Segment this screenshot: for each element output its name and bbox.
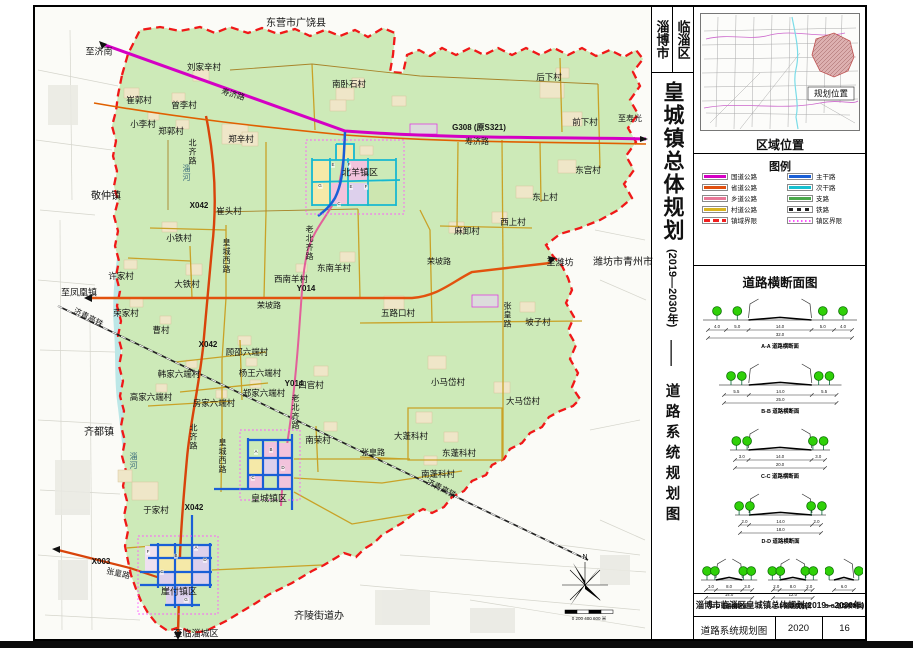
svg-text:3.0: 3.0	[739, 454, 746, 459]
cross-section-diagram: 2.014.02.018.0D-D 道路横断面	[726, 485, 835, 547]
legend-label: 乡道公路	[731, 193, 757, 203]
titleblock-mid-line	[693, 616, 867, 617]
legend-label: 支路	[816, 193, 829, 203]
svg-text:2.0: 2.0	[813, 519, 820, 524]
legend-column-right: 主干路次干路支路铁路镇区界限	[787, 172, 864, 224]
svg-text:5.0: 5.0	[734, 324, 741, 329]
svg-text:8.0: 8.0	[726, 584, 733, 589]
legend-swatch-solid	[787, 173, 813, 180]
cross-section-diagram: 5.514.05.525.0B-B 道路横断面	[710, 355, 851, 417]
legend-item: 支路	[787, 194, 864, 202]
svg-text:3.0: 3.0	[708, 584, 715, 589]
legend-label: 铁路	[816, 204, 829, 214]
legend-label: 村道公路	[731, 204, 757, 214]
legend-swatch-solid	[702, 173, 728, 180]
legend-swatch-solid	[787, 184, 813, 191]
svg-text:D-D 道路横断面: D-D 道路横断面	[761, 537, 800, 545]
titleblock-drawing-name: 道路系统规划图	[693, 623, 775, 637]
title-dash: ——	[665, 340, 680, 366]
legend-label: 镇域界限	[731, 215, 757, 225]
panel-divider-1	[693, 153, 867, 154]
svg-text:2.0: 2.0	[741, 519, 748, 524]
legend-label: 省道公路	[731, 182, 757, 192]
svg-text:20.0: 20.0	[776, 462, 785, 467]
city-name: 淄博市	[653, 20, 672, 59]
cross-sections-panel: 4.05.014.05.04.032.0A-A 道路横断面5.514.05.52…	[693, 290, 867, 612]
strip-dash-cell: ——	[651, 332, 693, 374]
strip-header-divider	[651, 72, 693, 73]
titleblock-project: 淄博市临淄区皇城镇总体规划(2019—2030年)	[695, 599, 865, 611]
legend-swatch-solid	[702, 184, 728, 191]
legend-item: 省道公路	[702, 183, 779, 191]
svg-text:12.0: 12.0	[789, 592, 798, 597]
strip-years-cell: (2019—2030年)	[651, 244, 693, 332]
strip-city-cell: 淄博市	[652, 8, 672, 70]
svg-text:C-C 道路横断面: C-C 道路横断面	[761, 472, 800, 480]
svg-text:8.0: 8.0	[790, 584, 797, 589]
svg-text:3.0: 3.0	[744, 584, 751, 589]
legend-item: 村道公路	[702, 205, 779, 213]
svg-text:32.0: 32.0	[776, 332, 785, 337]
svg-text:18.0: 18.0	[776, 527, 785, 532]
legend-swatch-dot	[787, 217, 813, 224]
legend-item: 乡道公路	[702, 194, 779, 202]
strip-district-cell: 临淄区	[673, 8, 693, 70]
legend-swatch-rail	[787, 206, 813, 213]
cross-section-diagram: 3.014.03.020.0C-C 道路横断面	[721, 420, 839, 482]
strip-subtitle-cell: 道路系统规划图	[651, 376, 693, 534]
svg-text:14.0: 14.0	[725, 592, 734, 597]
legend-item: 国道公路	[702, 172, 779, 180]
region-inset-map: 规划位置	[700, 13, 860, 131]
svg-text:4.0: 4.0	[714, 324, 721, 329]
svg-text:14.0: 14.0	[776, 454, 785, 459]
titleblock-sheet-number: 16	[822, 623, 867, 634]
main-title: 皇城镇总体规划	[657, 81, 687, 242]
svg-text:5.5: 5.5	[821, 389, 828, 394]
svg-text:14.0: 14.0	[776, 519, 785, 524]
plan-years: (2019—2030年)	[664, 249, 680, 327]
legend-item: 次干路	[787, 183, 864, 191]
svg-text:14.0: 14.0	[776, 389, 785, 394]
legend-item: 主干路	[787, 172, 864, 180]
legend-swatch-solid	[702, 206, 728, 213]
svg-text:3.0: 3.0	[815, 454, 822, 459]
svg-text:5.0: 5.0	[820, 324, 827, 329]
legend-swatch-dash	[702, 217, 728, 224]
titleblock-year: 2020	[775, 623, 822, 634]
svg-text:2.0: 2.0	[773, 584, 780, 589]
region-caption: 区域位置	[693, 136, 867, 153]
legend-label: 次干路	[816, 182, 836, 192]
legend: 国道公路省道公路乡道公路村道公路镇域界限 主干路次干路支路铁路镇区界限	[702, 172, 864, 224]
svg-text:6.0: 6.0	[841, 584, 848, 589]
svg-text:B-B 道路横断面: B-B 道路横断面	[761, 407, 800, 415]
strip-main-title-cell: 皇城镇总体规划	[651, 80, 693, 242]
cross-sections-title: 道路横断面图	[693, 272, 867, 291]
panel-divider-2	[693, 265, 867, 266]
svg-text:14.0: 14.0	[776, 324, 785, 329]
legend-label: 镇区界限	[816, 215, 842, 225]
legend-item: 镇区界限	[787, 216, 864, 224]
plan-sheet: N 0 200 400 600 米 东营市广饶县至济南刘家辛村南卧石村后下村前下…	[0, 0, 913, 648]
cross-section-diagram: 4.05.014.05.04.032.0A-A 道路横断面	[694, 290, 866, 352]
legend-label: 主干路	[816, 171, 836, 181]
footer-band	[0, 641, 913, 648]
svg-text:25.0: 25.0	[776, 397, 785, 402]
district-name: 临淄区	[674, 20, 693, 59]
legend-item: 镇域界限	[702, 216, 779, 224]
legend-label: 国道公路	[731, 171, 757, 181]
legend-swatch-solid	[787, 195, 813, 202]
svg-text:5.5: 5.5	[733, 389, 740, 394]
inset-marker-callout: 规划位置	[808, 87, 854, 100]
legend-item: 铁路	[787, 205, 864, 213]
legend-column-left: 国道公路省道公路乡道公路村道公路镇域界限	[702, 172, 779, 224]
legend-swatch-solid	[702, 195, 728, 202]
svg-text:A-A 道路横断面: A-A 道路横断面	[761, 342, 799, 350]
drawing-subtitle: 道路系统规划图	[662, 383, 683, 527]
svg-text:4.0: 4.0	[840, 324, 847, 329]
inset-marker-label: 规划位置	[814, 89, 849, 99]
svg-text:2.0: 2.0	[806, 584, 813, 589]
